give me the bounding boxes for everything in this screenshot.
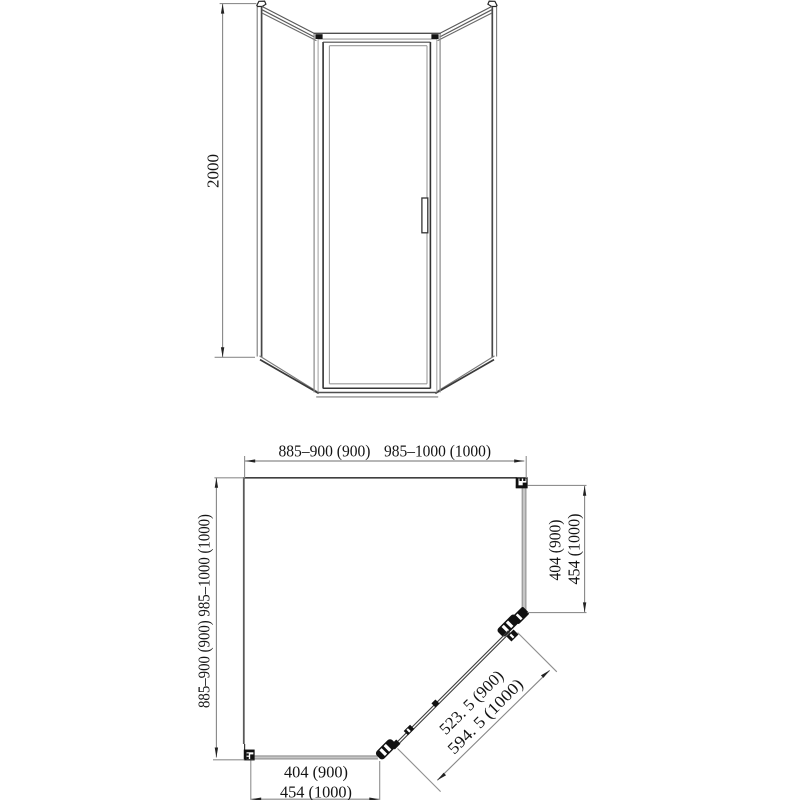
svg-text:454 (1000): 454 (1000) [280, 783, 352, 800]
svg-text:454 (1000): 454 (1000) [564, 514, 583, 585]
svg-text:985–1000 (1000): 985–1000 (1000) [384, 442, 491, 461]
svg-text:885–900 (900) 985–1000 (1000): 885–900 (900) 985–1000 (1000) [194, 514, 213, 708]
svg-text:404 (900): 404 (900) [284, 763, 348, 782]
svg-text:2000: 2000 [203, 154, 222, 188]
svg-text:404 (900): 404 (900) [545, 520, 564, 581]
svg-text:885–900 (900): 885–900 (900) [279, 442, 371, 461]
